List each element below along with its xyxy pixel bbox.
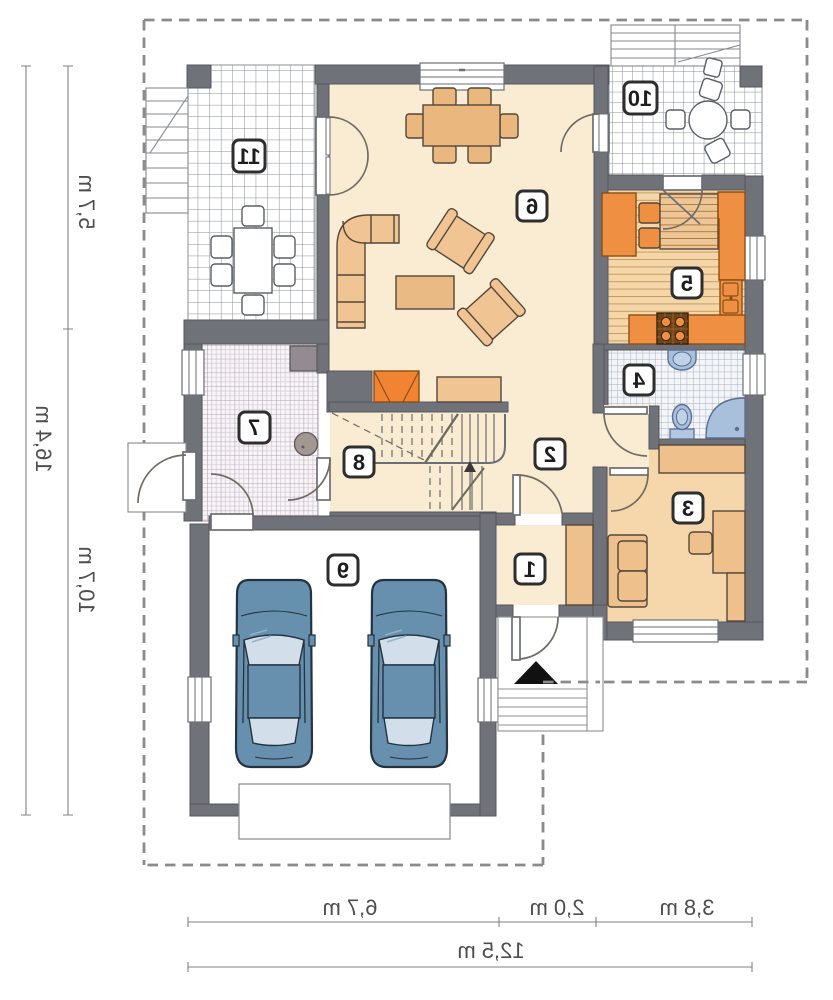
svg-text:16,4 m: 16,4 m — [31, 405, 56, 472]
svg-text:9: 9 — [337, 558, 349, 583]
svg-text:10: 10 — [628, 86, 652, 111]
svg-text:6,7 m: 6,7 m — [322, 895, 377, 920]
svg-text:3: 3 — [682, 496, 694, 521]
svg-text:2,0 m: 2,0 m — [529, 895, 584, 920]
svg-text:5,7 m: 5,7 m — [74, 174, 99, 229]
svg-text:11: 11 — [237, 144, 260, 169]
svg-text:7: 7 — [248, 415, 260, 440]
svg-text:2: 2 — [544, 442, 556, 467]
svg-text:12,5 m: 12,5 m — [457, 938, 524, 963]
svg-text:8: 8 — [353, 450, 365, 475]
svg-text:6: 6 — [526, 194, 538, 219]
svg-text:10,7 m: 10,7 m — [74, 546, 99, 613]
svg-text:1: 1 — [524, 557, 536, 582]
svg-text:3,8 m: 3,8 m — [659, 895, 714, 920]
svg-text:5: 5 — [681, 271, 693, 296]
svg-text:4: 4 — [632, 368, 645, 393]
